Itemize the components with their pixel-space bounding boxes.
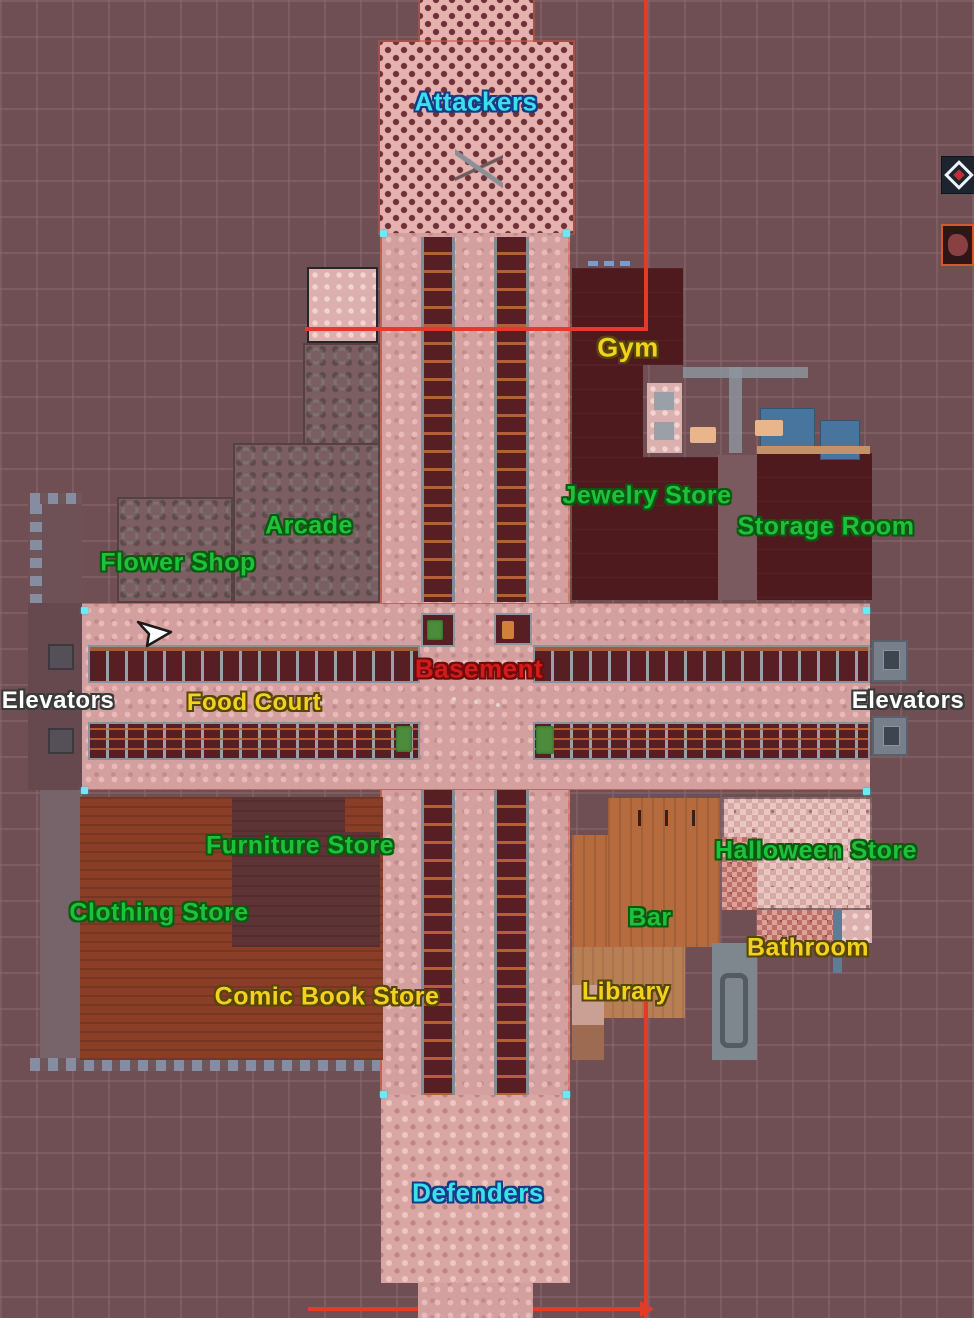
game-map-view: AttackersGymJewelry StoreStorage RoomArc…: [0, 0, 974, 1318]
storefront-row: [88, 645, 420, 683]
boundary-line-bottom-vertical: [644, 1002, 648, 1318]
map-label-arcade: Arcade: [265, 512, 353, 541]
minimap-thumbnail-icon[interactable]: [941, 224, 974, 266]
map-label-storage-room: Storage Room: [738, 513, 915, 542]
wall-segment: [729, 367, 742, 453]
room-furniture-store: [232, 797, 345, 832]
map-label-defenders: Defenders: [412, 1178, 544, 1209]
planter-icon: [536, 726, 554, 754]
planter-box: [421, 613, 455, 647]
escalator-column: [421, 237, 455, 602]
corner-marker-icon: [380, 1091, 387, 1098]
map-label-jewelry-store: Jewelry Store: [562, 482, 731, 511]
spawn-props: [455, 148, 503, 188]
boundary-line-top-vertical: [644, 0, 648, 330]
wall-segment: [683, 367, 808, 378]
map-label-elevators-right: Elevators: [852, 687, 965, 715]
corner-marker-icon: [863, 788, 870, 795]
door-dashes: [588, 261, 632, 266]
machine-prop: [820, 420, 860, 460]
elevator-right-south: [872, 716, 908, 756]
defenders-spawn-stub: [418, 1283, 533, 1318]
map-label-flower-shop: Flower Shop: [100, 549, 256, 578]
storefront-row: [533, 645, 870, 683]
room-gym-lower: [572, 365, 643, 457]
railing-left-icon: [30, 504, 42, 604]
map-label-comic-book-store: Comic Book Store: [215, 983, 440, 1012]
map-label-attackers: Attackers: [414, 87, 537, 118]
bathroom-stalls: [720, 973, 748, 1048]
room-bar-ext: [572, 835, 608, 947]
objective-diamond-icon[interactable]: [941, 156, 974, 194]
boundary-arrow-icon: [640, 1301, 654, 1317]
gym-mat: [654, 422, 674, 440]
bar-counter-ticks: [614, 810, 714, 826]
attackers-spawn-stub: [420, 0, 533, 44]
counter-strip: [757, 446, 870, 454]
boundary-line-top-horizontal: [305, 327, 648, 331]
storefront-row: [533, 722, 870, 760]
player-speck: [474, 700, 478, 704]
attackers-spawn-room: [380, 42, 573, 233]
elevator-right-north: [872, 640, 908, 682]
map-label-halloween-store: Halloween Store: [715, 837, 917, 866]
library-ext-floor: [572, 1025, 604, 1060]
room-upper-left: [307, 267, 378, 343]
map-label-clothing-store: Clothing Store: [69, 899, 248, 928]
corner-marker-icon: [563, 230, 570, 237]
character-marker: [755, 420, 783, 436]
map-label-elevators-left: Elevators: [2, 687, 115, 715]
storefront-row: [88, 722, 420, 760]
planter-icon: [396, 726, 412, 752]
elevator-left-south: [48, 728, 74, 754]
corner-marker-icon: [81, 607, 88, 614]
map-label-gym: Gym: [597, 333, 659, 364]
railing-top-icon: [30, 493, 82, 504]
map-label-basement: Basement: [415, 654, 543, 685]
map-label-furniture-store: Furniture Store: [206, 832, 394, 861]
escalator-column: [494, 237, 529, 602]
character-marker: [690, 427, 716, 443]
map-label-bathroom: Bathroom: [747, 934, 869, 963]
map-label-food-court: Food Court: [187, 689, 321, 717]
map-label-bar: Bar: [628, 904, 671, 933]
corner-marker-icon: [563, 1091, 570, 1098]
map-label-library: Library: [582, 978, 670, 1007]
room-jewelry-store: [572, 457, 718, 600]
escalator-column: [494, 790, 529, 1095]
player-speck: [452, 697, 456, 701]
player-speck: [496, 703, 500, 707]
gym-mat: [654, 392, 674, 410]
corner-marker-icon: [81, 787, 88, 794]
elevator-left-north: [48, 644, 74, 670]
corner-marker-icon: [863, 607, 870, 614]
planter-box: [494, 613, 532, 645]
escalator-column: [421, 790, 455, 1095]
corner-marker-icon: [380, 230, 387, 237]
cursor-icon[interactable]: [135, 619, 175, 649]
